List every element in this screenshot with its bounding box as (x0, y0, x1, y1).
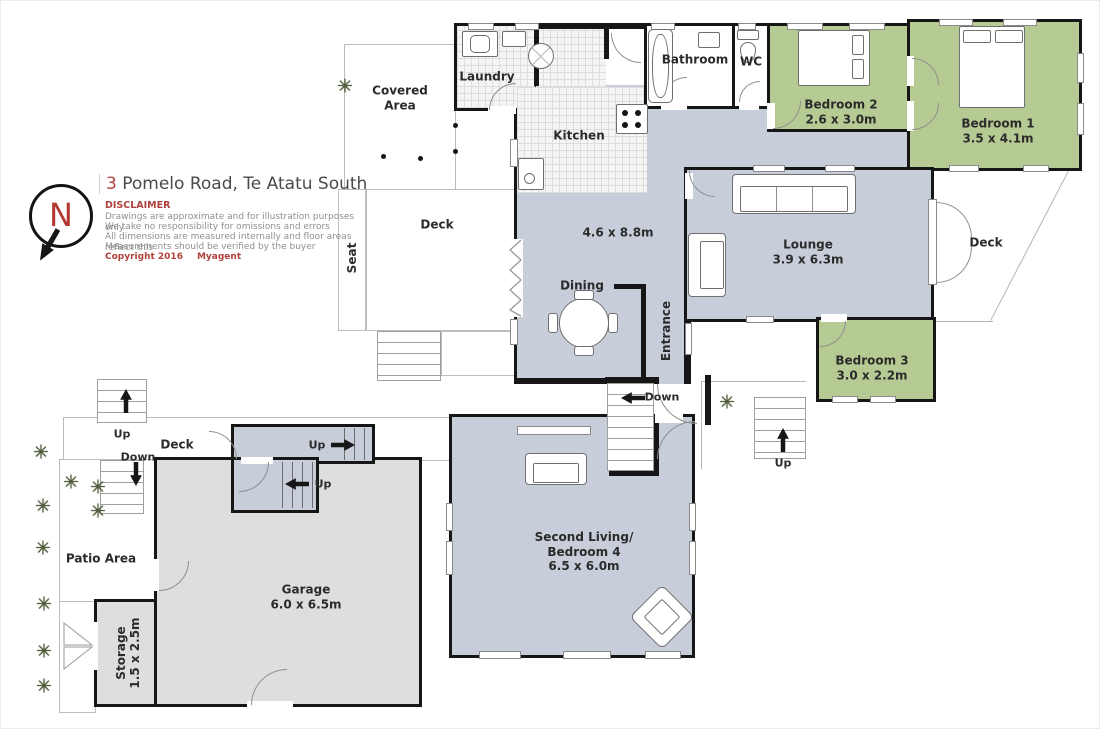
window (787, 23, 823, 30)
deck-upper (366, 189, 516, 331)
label-lounge: Lounge 3.9 x 6.3m (772, 237, 843, 266)
window (832, 396, 858, 403)
label-entrance: Entrance (659, 301, 673, 361)
plant-icon: ✳ (36, 596, 52, 615)
storage-name: Storage (114, 617, 128, 688)
window (849, 23, 885, 30)
label-living-dims: 4.6 x 8.8m (582, 226, 653, 241)
label-bedroom-1: Bedroom 1 3.5 x 4.1m (961, 116, 1034, 145)
french-door-arc (936, 247, 972, 283)
post (453, 149, 458, 154)
plant-icon: ✳ (90, 479, 106, 498)
sofa-small-seat (700, 241, 724, 289)
label-bedroom-3: Bedroom 3 3.0 x 2.2m (835, 353, 908, 382)
label-up-corridor1: Up (309, 438, 326, 451)
second-living-line1: Second Living/ (535, 530, 634, 545)
sofa-cushion-line (812, 187, 813, 211)
stairs-up-right (754, 397, 806, 459)
wall (514, 378, 610, 384)
window (510, 139, 518, 167)
label-up-right: Up (775, 456, 792, 469)
dining-table (559, 298, 609, 348)
wall (604, 29, 609, 59)
covered-area (344, 44, 456, 191)
label-garage: Garage 6.0 x 6.5m (270, 582, 341, 611)
wall (705, 375, 711, 425)
pillow (852, 35, 864, 55)
stair-court-top-line (701, 381, 806, 382)
door-gap (661, 102, 687, 110)
second-living-line2: Bedroom 4 (535, 545, 634, 560)
window (468, 23, 494, 30)
stairs-deck-upper (377, 331, 441, 381)
window (446, 541, 453, 575)
page-title: 3 Pomelo Road, Te Atatu South (99, 174, 367, 194)
plant-icon: ✳ (36, 643, 52, 662)
wall (536, 23, 649, 29)
window (515, 23, 539, 30)
bedroom-3-dims: 3.0 x 2.2m (835, 368, 908, 383)
bathroom-sink (698, 32, 720, 48)
window (939, 19, 973, 26)
bedroom-1-name: Bedroom 1 (961, 116, 1034, 131)
street-number: 3 (106, 174, 117, 194)
stove (616, 104, 648, 134)
window (1077, 103, 1084, 135)
window (510, 319, 518, 345)
label-patio: Patio Area (66, 552, 136, 567)
label-dining: Dining (560, 279, 604, 294)
plant-icon: ✳ (33, 444, 49, 463)
label-covered-area: Covered Area (363, 83, 437, 112)
door-gap (151, 559, 159, 591)
post (418, 156, 423, 161)
pillow (995, 30, 1023, 43)
window (1023, 165, 1049, 172)
pillow (963, 30, 991, 43)
window (689, 541, 696, 575)
bifold-door-icon (507, 239, 523, 317)
interior-window (517, 426, 591, 435)
window (746, 316, 774, 323)
label-kitchen: Kitchen (553, 129, 605, 144)
label-second-living: Second Living/ Bedroom 4 6.5 x 6.0m (535, 530, 634, 574)
plant-icon: ✳ (337, 78, 353, 97)
chair (574, 346, 594, 356)
street-name: Pomelo Road, Te Atatu South (117, 174, 367, 194)
bedroom-3-name: Bedroom 3 (835, 353, 908, 368)
burner (635, 122, 641, 128)
label-down-left: Down (121, 450, 156, 463)
label-up-corridor2: Up (315, 477, 332, 490)
label-bedroom-2: Bedroom 2 2.6 x 3.0m (804, 97, 877, 126)
disclaimer-line: Measurements should be verified by the b… (105, 242, 365, 253)
post (453, 123, 458, 128)
bedroom-1-dims: 3.5 x 4.1m (961, 131, 1034, 146)
sofa-seat (740, 186, 848, 212)
post (381, 154, 386, 159)
window (870, 396, 896, 403)
window (645, 651, 681, 659)
stair-court-left-line (701, 381, 702, 469)
burner (635, 110, 641, 116)
window (825, 165, 855, 172)
copyright-line: Copyright 2016Myagent (105, 252, 241, 262)
window (563, 651, 611, 659)
label-down-mid: Down (645, 390, 680, 403)
window (479, 651, 521, 659)
window (446, 503, 453, 531)
bedroom-2-dims: 2.6 x 3.0m (804, 112, 877, 127)
lounge-name: Lounge (772, 237, 843, 252)
deck-right-edge (933, 321, 993, 322)
storage-dims: 1.5 x 2.5m (128, 617, 142, 688)
label-deck-upper: Deck (420, 218, 453, 233)
wall (614, 284, 646, 289)
lounge-dims: 3.9 x 6.3m (772, 252, 843, 267)
french-door-arc (936, 202, 972, 238)
compass-rose: N (29, 184, 93, 248)
label-deck-right: Deck (969, 236, 1002, 251)
sofa-cushion-line (776, 187, 777, 211)
wall (609, 471, 659, 476)
second-living-dims: 6.5 x 6.0m (535, 559, 634, 574)
plant-icon: ✳ (90, 503, 106, 522)
plant-icon: ✳ (719, 394, 735, 413)
window (685, 323, 692, 355)
window (753, 165, 785, 172)
disclaimer-heading: DISCLAIMER (105, 200, 170, 211)
plant-icon: ✳ (36, 678, 52, 697)
label-laundry: Laundry (459, 70, 514, 85)
window (689, 503, 696, 531)
deck-upper-extension (441, 331, 516, 376)
label-up-left: Up (114, 427, 131, 440)
sofa-seat (533, 463, 579, 483)
chair (548, 313, 558, 333)
label-bathroom: Bathroom (662, 53, 728, 68)
toilet-tank (737, 30, 759, 40)
bedroom-2-name: Bedroom 2 (804, 97, 877, 112)
chair (608, 313, 618, 333)
window (738, 23, 756, 30)
burner (622, 110, 628, 116)
copyright-text: Copyright 2016 (105, 252, 183, 262)
laundry-sink (502, 31, 526, 47)
agent-name: Myagent (197, 252, 241, 262)
disclaimer-line: We take no responsibility for omissions … (105, 222, 365, 233)
window (1003, 19, 1037, 26)
garage-dims: 6.0 x 6.5m (270, 597, 341, 612)
door-gap (739, 102, 759, 110)
wall (641, 286, 646, 384)
label-deck-lower: Deck (160, 438, 193, 453)
label-wc: WC (740, 55, 762, 70)
label-storage: Storage 1.5 x 2.5m (114, 617, 142, 688)
garage-name: Garage (270, 582, 341, 597)
wall (654, 414, 659, 476)
double-door-icon (61, 621, 95, 671)
stairs-up-left (97, 379, 147, 423)
kitchen-sink-basin (524, 173, 535, 184)
floorplan-canvas: Covered Area Seat Deck Laundry Kitchen B… (0, 0, 1100, 729)
pillow (852, 59, 864, 79)
burner (622, 122, 628, 128)
plant-icon: ✳ (35, 540, 51, 559)
washing-machine-drum (470, 35, 490, 53)
plant-icon: ✳ (35, 498, 51, 517)
compass-north-letter: N (49, 196, 73, 234)
plant-icon: ✳ (63, 474, 79, 493)
window (949, 165, 979, 172)
window (1077, 53, 1084, 83)
